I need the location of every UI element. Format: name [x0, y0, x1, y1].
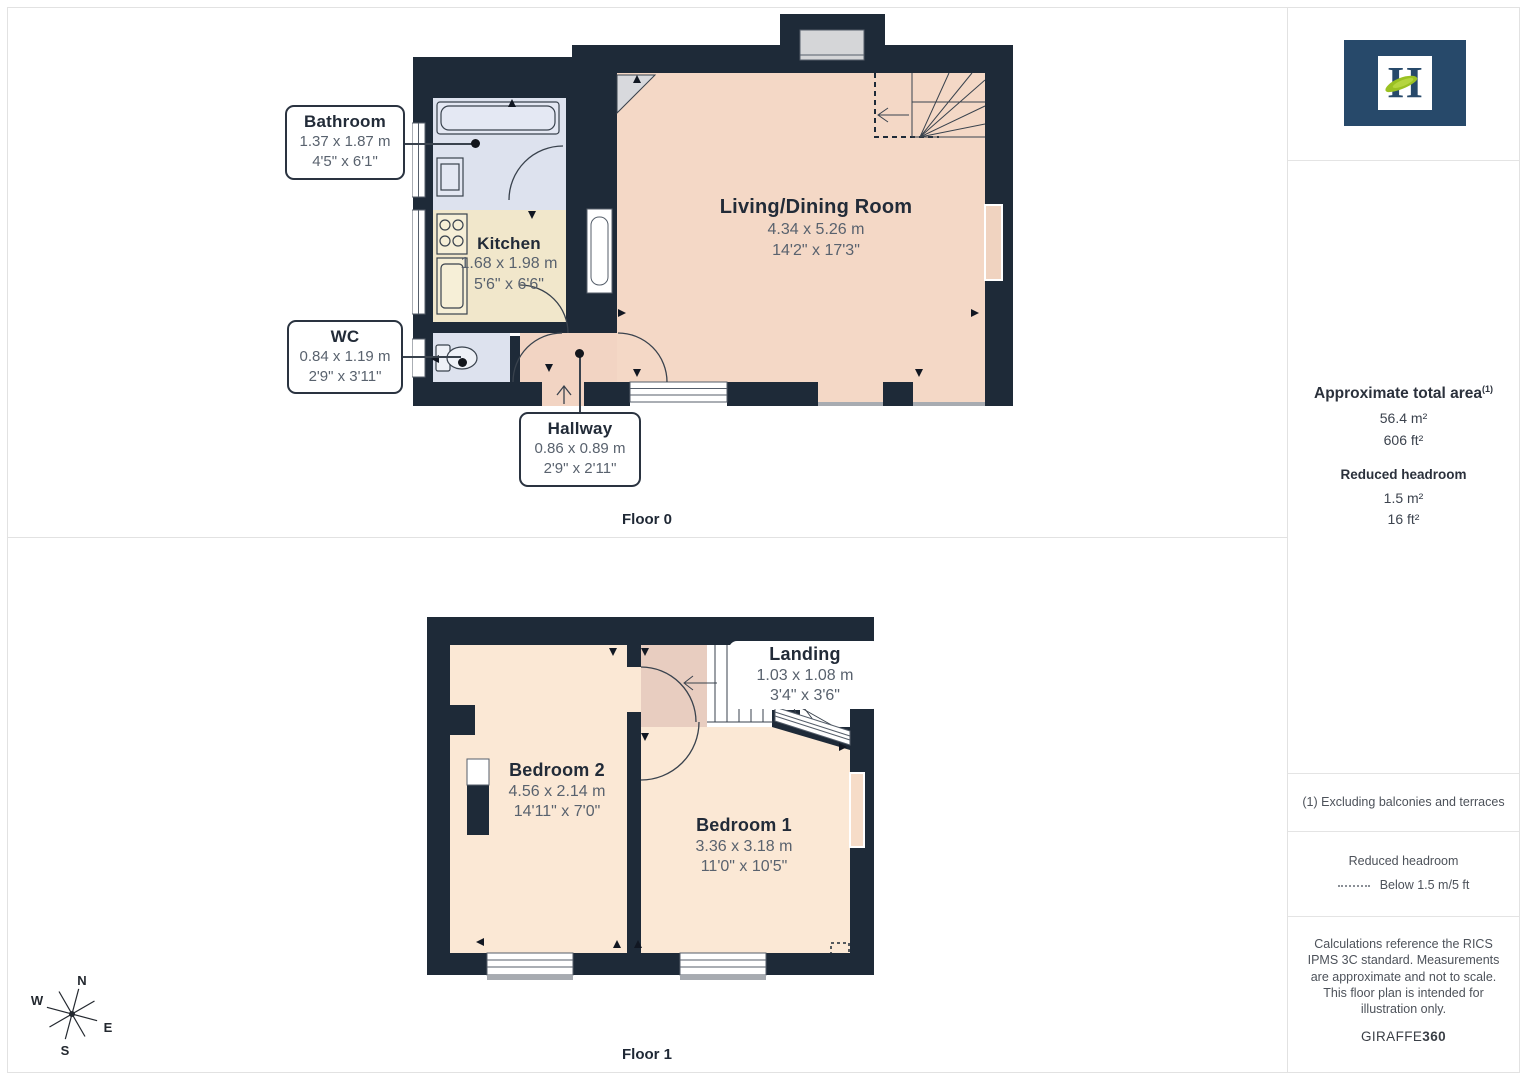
brand-logo: GIRAFFE360: [1288, 1029, 1519, 1044]
compass-n: N: [77, 973, 86, 988]
total-area-title: Approximate total area(1): [1288, 384, 1519, 403]
room-label-landing: Landing 1.03 x 1.08 m 3'4" x 3'6": [729, 641, 881, 709]
floorplan-page: Bathroom 1.37 x 1.87 m 4'5" x 6'1" WC 0.…: [0, 0, 1527, 1080]
room-label-wc: WC 0.84 x 1.19 m 2'9" x 3'11": [287, 320, 403, 394]
legend-row: Below 1.5 m/5 ft: [1288, 877, 1519, 893]
room-dim-metric: 0.84 x 1.19 m: [295, 347, 395, 367]
floor0-caption: Floor 0: [527, 511, 767, 528]
compass-e: E: [104, 1020, 113, 1035]
room-name: Kitchen: [429, 233, 589, 254]
info-sidebar: [1287, 8, 1520, 1072]
room-label-bedroom2: Bedroom 2 4.56 x 2.14 m 14'11" x 7'0": [457, 759, 657, 823]
sidebar-divider: [1288, 916, 1519, 917]
sidebar-divider: [1288, 160, 1519, 161]
compass-w: W: [31, 993, 44, 1008]
room-name: WC: [295, 326, 395, 347]
room-name: Bedroom 1: [644, 814, 844, 837]
legend-title: Reduced headroom: [1288, 853, 1519, 869]
brand-suffix: 360: [1422, 1029, 1446, 1044]
room-name: Bedroom 2: [457, 759, 657, 782]
compass-icon: N E S W: [28, 972, 128, 1064]
room-dim-metric: 1.68 x 1.98 m: [429, 254, 589, 275]
legend-label: Below 1.5 m/5 ft: [1380, 878, 1470, 892]
room-label-hallway: Hallway 0.86 x 0.89 m 2'9" x 2'11": [519, 412, 641, 487]
room-dim-imperial: 14'11" x 7'0": [457, 802, 657, 823]
floor-section-divider: [8, 537, 1287, 538]
compass-s: S: [61, 1043, 70, 1058]
hallway-leader-line: [579, 355, 581, 412]
wc-leader-line: [403, 356, 461, 358]
total-area-ft2: 606 ft²: [1288, 432, 1519, 448]
reduced-headroom-m2: 1.5 m²: [1288, 490, 1519, 506]
room-name: Hallway: [527, 418, 633, 439]
bathroom-leader-line: [405, 143, 475, 145]
wc-anchor-dot: [458, 358, 467, 367]
room-dim-metric: 0.86 x 0.89 m: [527, 439, 633, 459]
room-dim-imperial: 2'9" x 2'11": [527, 459, 633, 479]
hallway-anchor-dot: [575, 349, 584, 358]
reduced-headroom-ft2: 16 ft²: [1288, 511, 1519, 527]
right-bay: [850, 773, 864, 847]
agency-logo: H: [1344, 40, 1466, 126]
room-dim-imperial: 14'2" x 17'3": [686, 241, 946, 262]
room-dim-imperial: 3'4" x 3'6": [733, 686, 877, 707]
sidebar-divider: [1288, 831, 1519, 832]
room-dim-metric: 4.34 x 5.26 m: [686, 220, 946, 241]
disclaimer-text: Calculations reference the RICS IPMS 3C …: [1302, 936, 1505, 1017]
area-footnote: (1) Excluding balconies and terraces: [1288, 794, 1519, 810]
wc-toilet: [436, 345, 477, 371]
room-dim-imperial: 2'9" x 3'11": [295, 367, 395, 387]
floor1-caption: Floor 1: [527, 1046, 767, 1063]
room-name: Living/Dining Room: [686, 195, 946, 220]
room-dim-metric: 1.37 x 1.87 m: [293, 132, 397, 152]
hallway-floor: [520, 333, 617, 382]
room-dim-metric: 3.36 x 3.18 m: [644, 837, 844, 858]
room-label-bathroom: Bathroom 1.37 x 1.87 m 4'5" x 6'1": [285, 105, 405, 180]
door-opening: [627, 667, 641, 712]
total-area-m2: 56.4 m²: [1288, 410, 1519, 426]
dotted-line-sample: [1338, 885, 1370, 887]
total-area-footnote-ref: (1): [1482, 384, 1493, 394]
room-label-living: Living/Dining Room 4.34 x 5.26 m 14'2" x…: [686, 195, 946, 262]
right-bay: [985, 205, 1002, 280]
sidebar-divider: [1288, 773, 1519, 774]
room-name: Bathroom: [293, 111, 397, 132]
reduced-headroom-title: Reduced headroom: [1288, 467, 1519, 482]
room-dim-metric: 1.03 x 1.08 m: [733, 666, 877, 687]
brand-name: GIRAFFE: [1361, 1029, 1422, 1044]
room-name: Landing: [733, 643, 877, 666]
bathroom-anchor-dot: [471, 139, 480, 148]
room-dim-imperial: 11'0" x 10'5": [644, 857, 844, 878]
entrance-opening: [542, 382, 584, 406]
total-area-title-text: Approximate total area: [1314, 385, 1482, 402]
room-dim-imperial: 4'5" x 6'1": [293, 152, 397, 172]
logo-inner-square: H: [1378, 56, 1432, 110]
room-label-kitchen: Kitchen 1.68 x 1.98 m 5'6" x 6'6": [429, 233, 589, 296]
room-label-bedroom1: Bedroom 1 3.36 x 3.18 m 11'0" x 10'5": [644, 814, 844, 878]
room-dim-metric: 4.56 x 2.14 m: [457, 782, 657, 803]
radiator: [591, 217, 608, 285]
room-dim-imperial: 5'6" x 6'6": [429, 275, 589, 296]
